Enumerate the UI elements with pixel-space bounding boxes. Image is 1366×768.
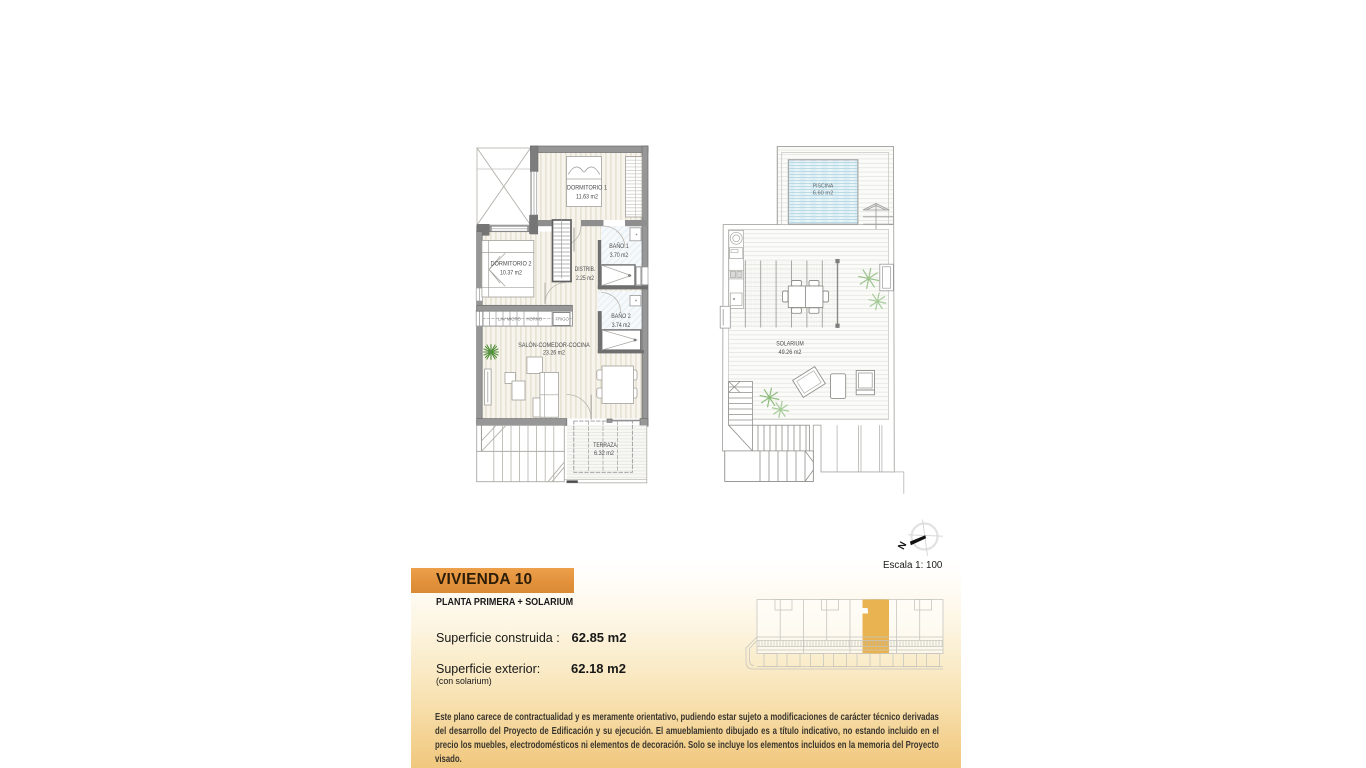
svg-text:FRIGO: FRIGO [556, 316, 570, 321]
svg-text:Escala 1: 100: Escala 1: 100 [883, 560, 943, 571]
svg-text:BAÑO 1: BAÑO 1 [609, 243, 629, 250]
svg-text:11.63 m2: 11.63 m2 [576, 194, 598, 201]
svg-text:N: N [896, 540, 909, 552]
svg-text:23.26 m2: 23.26 m2 [543, 350, 565, 357]
svg-text:DORMITORIO 1: DORMITORIO 1 [567, 185, 607, 192]
svg-text:SALÓN-COMEDOR-COCINA: SALÓN-COMEDOR-COCINA [518, 342, 590, 349]
svg-text:6.60 m2: 6.60 m2 [813, 191, 834, 197]
svg-text:TERRAZA: TERRAZA [593, 443, 617, 449]
svg-text:6.32 m2: 6.32 m2 [594, 451, 615, 457]
svg-text:3.70 m2: 3.70 m2 [610, 253, 629, 259]
svg-text:LAV MICRO: LAV MICRO [498, 316, 521, 321]
svg-text:DISTRIB.: DISTRIB. [575, 267, 596, 273]
svg-text:PISCINA: PISCINA [813, 184, 834, 190]
svg-text:3.74 m2: 3.74 m2 [612, 323, 631, 329]
svg-text:DORMITORIO 2: DORMITORIO 2 [491, 261, 533, 268]
svg-text:10.37 m2: 10.37 m2 [500, 270, 522, 277]
svg-text:2.25 m2: 2.25 m2 [576, 276, 595, 282]
svg-text:BAÑO 2: BAÑO 2 [611, 313, 631, 320]
svg-text:49.26 m2: 49.26 m2 [779, 349, 802, 356]
svg-text:SOLARIUM: SOLARIUM [776, 341, 804, 348]
svg-text:HORNO: HORNO [527, 316, 543, 321]
